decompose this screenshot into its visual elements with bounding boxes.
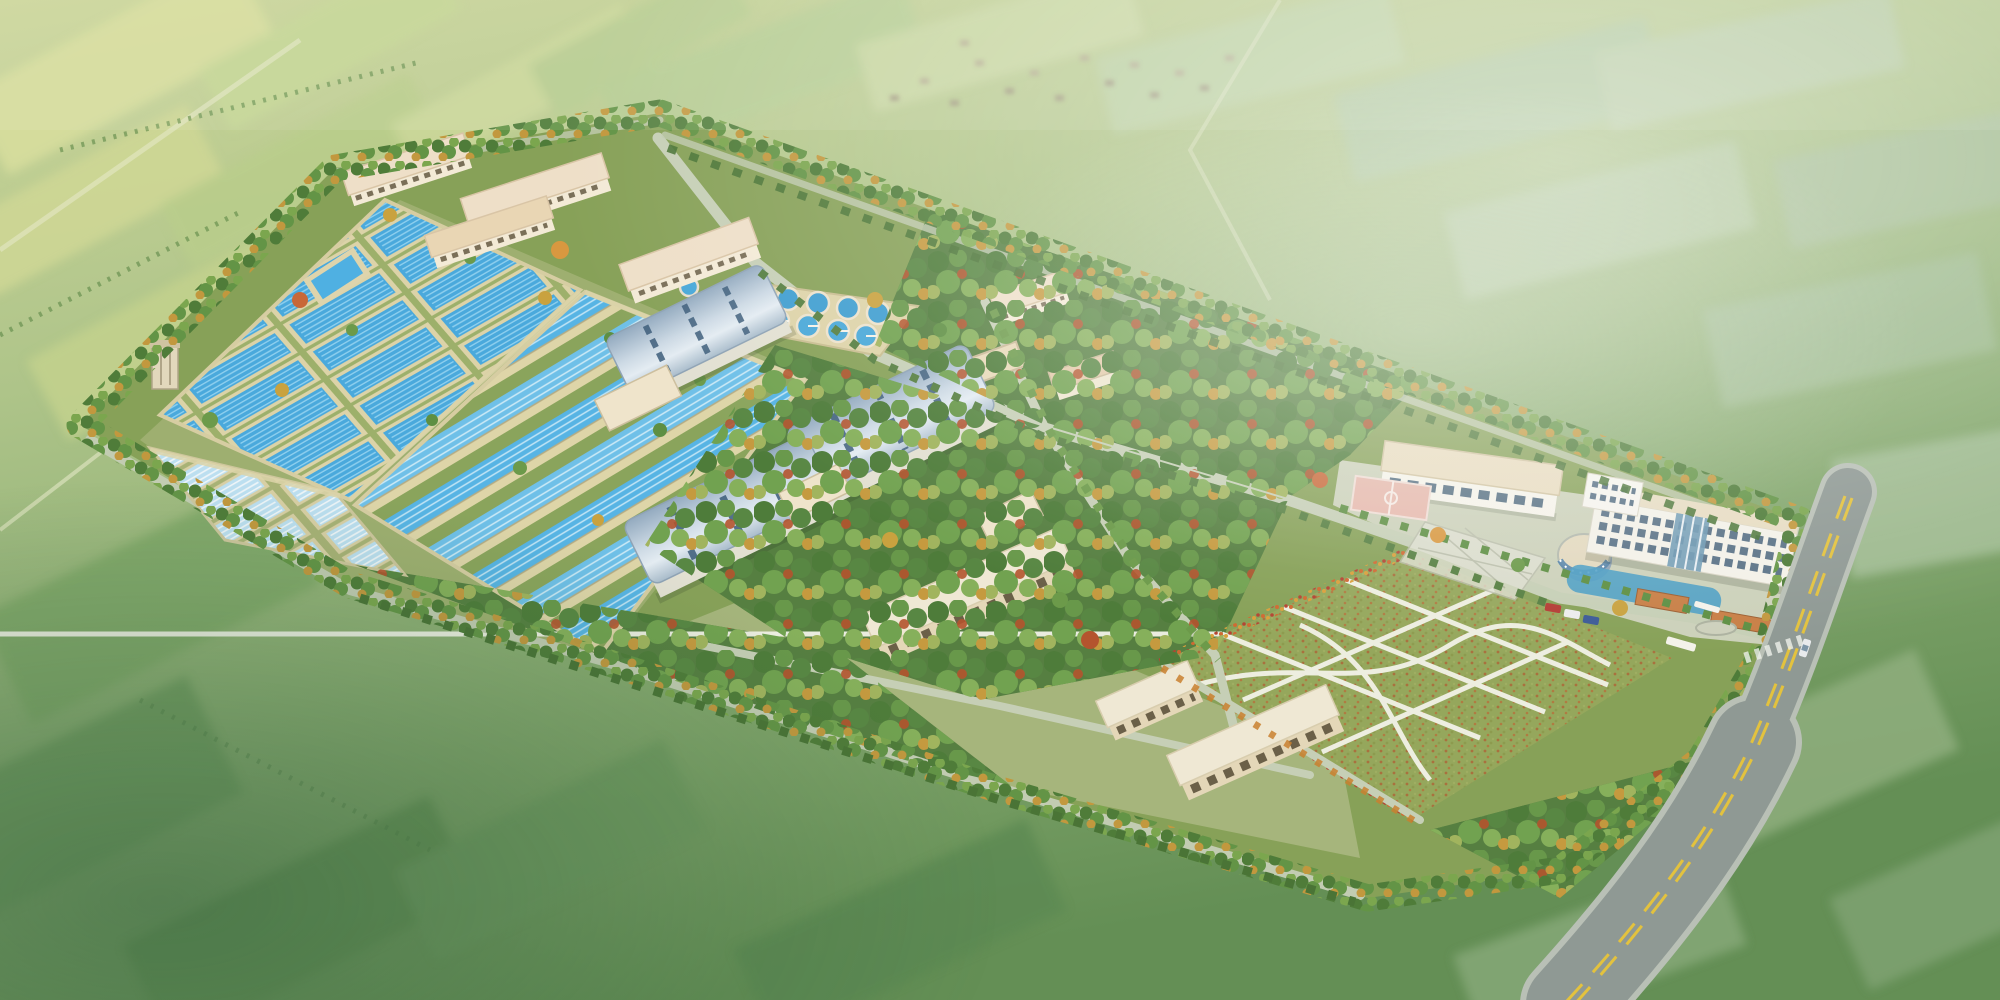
rendering-canvas xyxy=(0,0,2000,1000)
scene-rendering xyxy=(0,0,2000,1000)
atmosphere-haze xyxy=(0,0,2000,1000)
